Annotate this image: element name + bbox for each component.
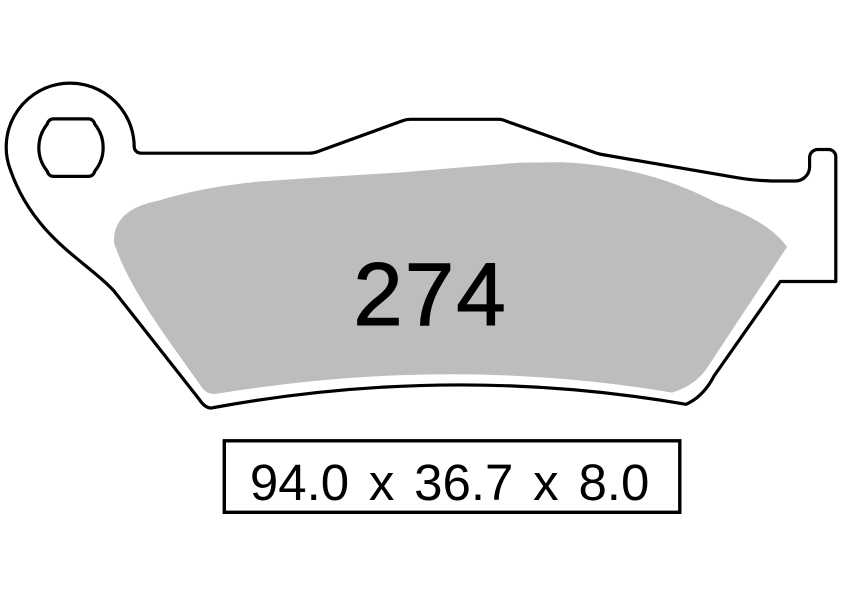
svg-text:274: 274: [353, 244, 508, 344]
svg-text:94.0 x 36.7 x 8.0: 94.0 x 36.7 x 8.0: [250, 454, 650, 511]
